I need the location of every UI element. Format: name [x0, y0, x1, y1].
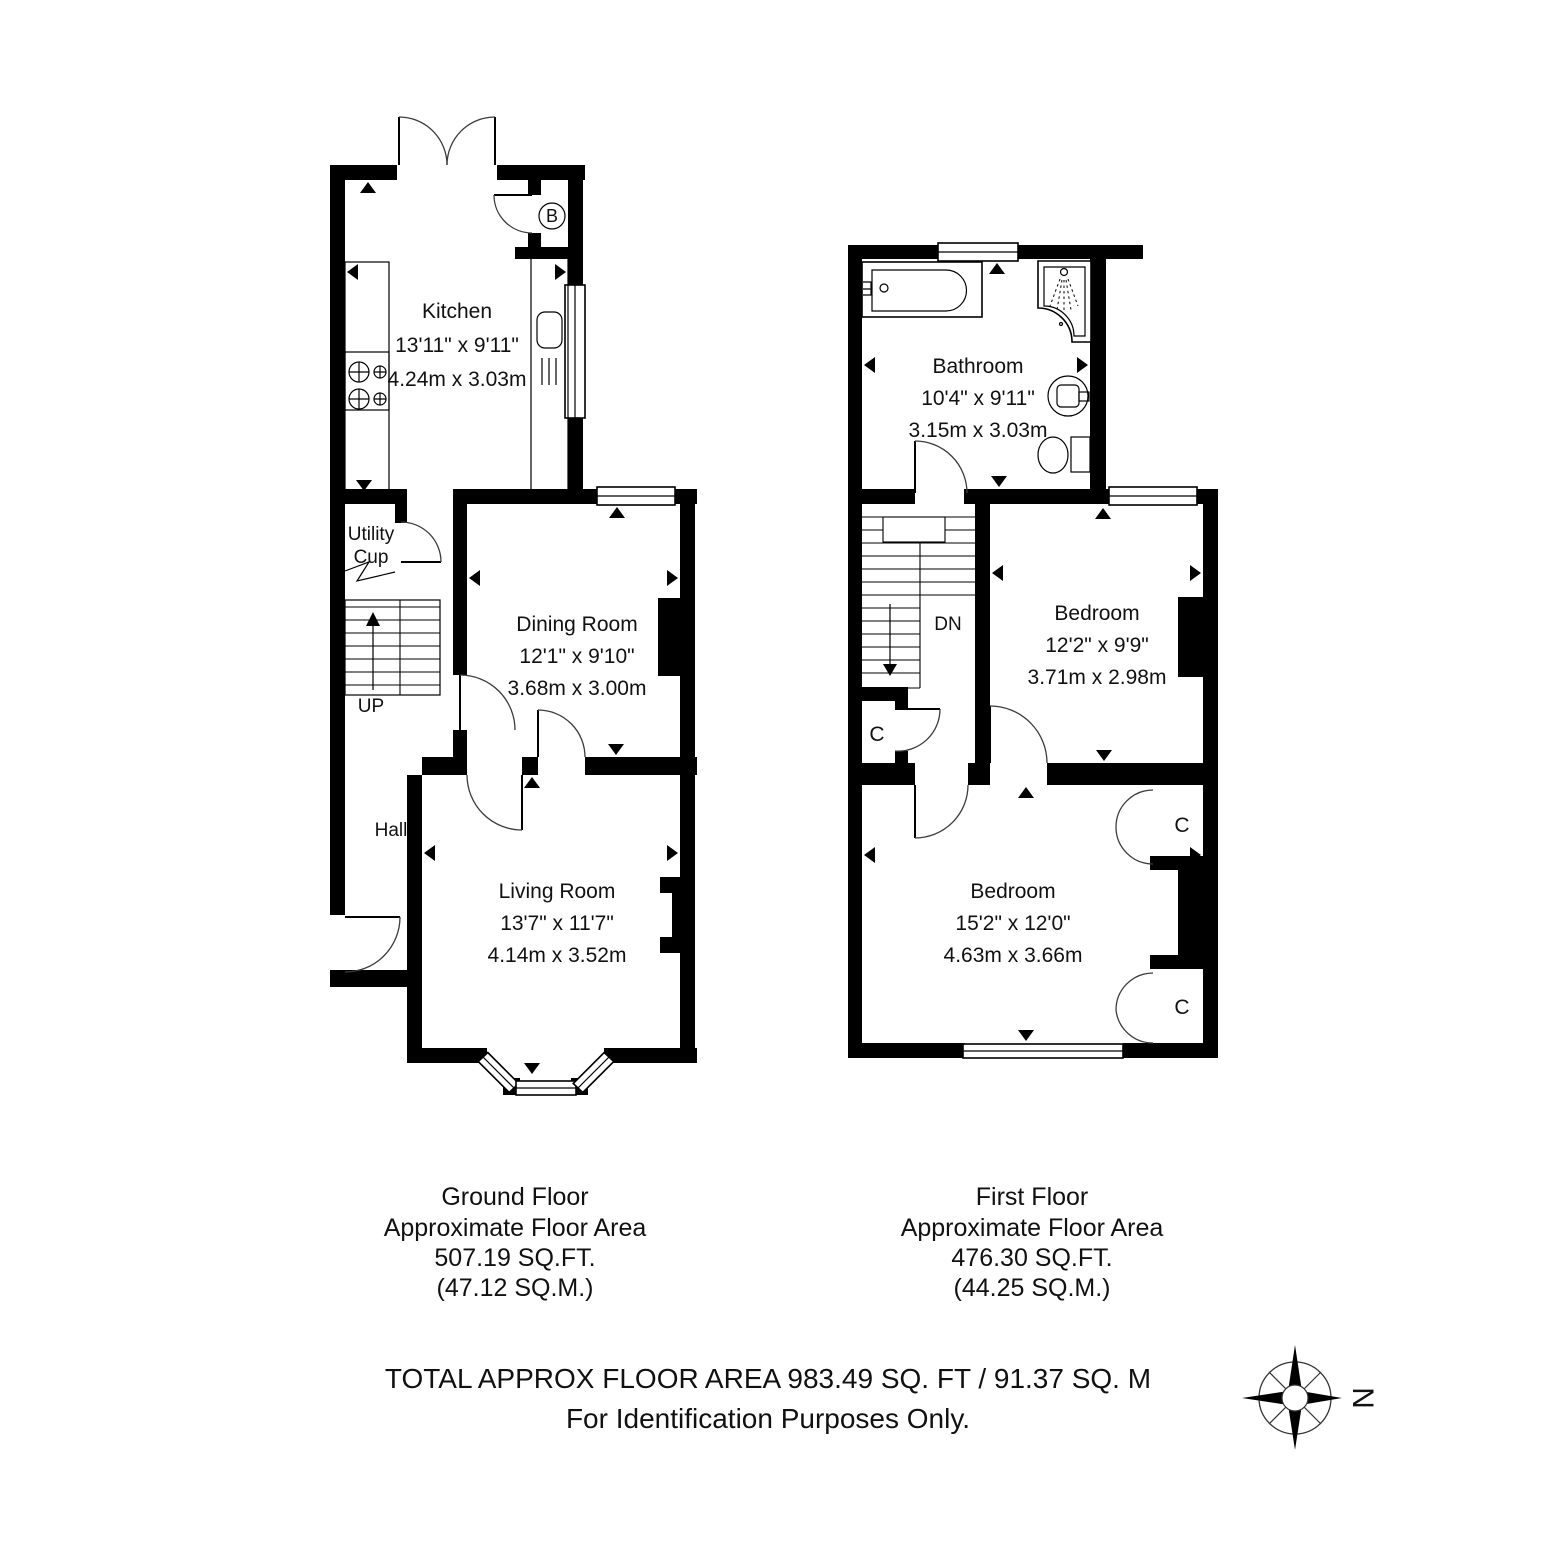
marker-triangle	[360, 182, 376, 193]
dining-room-dims-imperial: 12'1" x 9'10"	[519, 645, 634, 668]
closet-landing-door-arc	[895, 709, 940, 751]
kitchen-dims-metric: 4.24m x 3.03m	[388, 368, 527, 391]
bedroom-rear-door-arc	[990, 706, 1047, 763]
stairs-down-label: DN	[934, 614, 961, 635]
marker-triangle	[991, 476, 1007, 487]
closet-front-bifold-bottom	[1116, 1010, 1153, 1043]
basin-bowl	[1057, 385, 1079, 407]
boiler-cupboard-door-arc	[494, 195, 532, 233]
footer: TOTAL APPROX FLOOR AREA 983.49 SQ. FT / …	[385, 1363, 1151, 1434]
kitchen-drainer	[542, 358, 556, 385]
bathroom-dims-metric: 3.15m x 3.03m	[909, 419, 1048, 442]
ground-floor-caption-3: 507.19 SQ.FT.	[434, 1244, 595, 1272]
marker-triangle	[864, 357, 875, 373]
utility-door-arc	[401, 522, 441, 562]
total-area-text: TOTAL APPROX FLOOR AREA 983.49 SQ. FT / …	[385, 1363, 1151, 1394]
closet-rear-label: C	[1174, 814, 1189, 837]
closet-rear-bifold-bottom	[1116, 827, 1153, 864]
closet-landing-label: C	[869, 723, 884, 746]
closet-rear-bifold-top	[1116, 790, 1153, 827]
marker-triangle	[347, 264, 358, 280]
bedroom-front-door-arc	[915, 785, 968, 838]
dining-living-door-arc	[538, 710, 585, 757]
bedroom-front-dims-metric: 4.63m x 3.66m	[944, 944, 1083, 967]
first-floor-caption-1: First Floor	[976, 1183, 1089, 1211]
bedroom-rear-dims-metric: 3.71m x 2.98m	[1028, 666, 1167, 689]
ground-floor-stairs	[345, 562, 440, 695]
ground-floor-caption-1: Ground Floor	[441, 1183, 588, 1211]
first-floor-plan: Bathroom 10'4" x 9'11" 3.15m x 3.03m Bed…	[848, 243, 1218, 1058]
ground-floor-caption-2: Approximate Floor Area	[384, 1214, 647, 1242]
french-door-left-arc	[399, 117, 447, 165]
first-floor-caption-2: Approximate Floor Area	[901, 1214, 1164, 1242]
floor-captions: Ground Floor Approximate Floor Area 507.…	[384, 1183, 1164, 1302]
disclaimer-text: For Identification Purposes Only.	[566, 1403, 970, 1434]
bedroom-rear-label: Bedroom	[1054, 602, 1139, 625]
marker-triangle	[524, 1063, 540, 1074]
ground-floor-plan: Kitchen 13'11" x 9'11" 4.24m x 3.03m Din…	[330, 117, 697, 1095]
bedroom-rear-dims-imperial: 12'2" x 9'9"	[1045, 634, 1149, 657]
marker-triangle	[1096, 750, 1112, 761]
marker-triangle	[1077, 357, 1088, 373]
closet-front-bifold-top	[1116, 973, 1153, 1010]
bedroom-front-label: Bedroom	[970, 880, 1055, 903]
marker-triangle	[469, 570, 480, 586]
utility-label-line1: Utility	[348, 524, 395, 545]
shower-tray-outer	[1038, 261, 1091, 342]
first-floor-caption-4: (44.25 SQ.M.)	[954, 1274, 1111, 1302]
marker-triangle	[1018, 1030, 1034, 1041]
living-door-arc	[467, 775, 522, 830]
bathroom-dims-imperial: 10'4" x 9'11"	[921, 387, 1035, 410]
marker-triangle	[989, 263, 1005, 274]
marker-triangle	[555, 264, 566, 280]
first-floor-caption-3: 476.30 SQ.FT.	[951, 1244, 1112, 1272]
bay-window-left-line	[483, 1057, 514, 1088]
toilet-bowl	[1038, 437, 1068, 473]
kitchen-dims-imperial: 13'11" x 9'11"	[395, 334, 519, 357]
dining-room-dims-metric: 3.68m x 3.00m	[508, 677, 647, 700]
basin-outer	[1048, 376, 1088, 416]
hob-unit	[345, 352, 389, 410]
compass-rose: N	[1242, 1345, 1379, 1450]
marker-triangle	[1018, 787, 1034, 798]
bathroom-label: Bathroom	[932, 355, 1023, 378]
stairwell-void	[883, 517, 945, 542]
ground-floor-caption-4: (47.12 SQ.M.)	[437, 1274, 594, 1302]
dining-room-label: Dining Room	[516, 613, 637, 636]
marker-triangle	[524, 777, 540, 788]
marker-triangle	[1190, 565, 1201, 581]
closet-front-label: C	[1174, 996, 1189, 1019]
stairs-up-label: UP	[358, 696, 384, 717]
first-floor-stairs	[862, 517, 975, 688]
bedroom-front-dims-imperial: 15'2" x 12'0"	[955, 912, 1070, 935]
marker-triangle	[992, 565, 1003, 581]
marker-triangle	[608, 744, 624, 755]
stairs-outline	[345, 600, 440, 695]
marker-triangle	[609, 507, 625, 518]
living-room-dims-imperial: 13'7" x 11'7"	[500, 912, 614, 935]
marker-triangle	[1095, 508, 1111, 519]
stairs-down-arrowhead	[883, 664, 897, 676]
stairs-up-arrowhead	[366, 612, 380, 626]
front-door-arc	[345, 917, 400, 972]
utility-label-line2: Cup	[354, 547, 389, 568]
marker-triangle	[864, 847, 875, 863]
kitchen-sink	[537, 312, 562, 348]
bay-window-right-line	[578, 1057, 609, 1088]
living-room-label: Living Room	[499, 880, 616, 903]
toilet-cistern	[1071, 437, 1090, 472]
first-floor-walls	[848, 245, 1218, 1058]
floorplan-canvas: Kitchen 13'11" x 9'11" 4.24m x 3.03m Din…	[0, 0, 1550, 1550]
shower-drain	[1060, 323, 1063, 326]
marker-triangle	[424, 845, 435, 861]
french-door-right-arc	[447, 117, 495, 165]
fireplace-recess	[652, 893, 672, 937]
boiler-label: B	[546, 206, 558, 226]
living-room-dims-metric: 4.14m x 3.52m	[488, 944, 627, 967]
marker-triangle	[667, 845, 678, 861]
stairs-treads	[345, 607, 440, 685]
kitchen-label: Kitchen	[422, 300, 492, 323]
compass-hub	[1282, 1385, 1308, 1411]
compass-north-label: N	[1346, 1387, 1379, 1409]
bathroom-door-arc	[915, 441, 967, 493]
hall-label: Hall	[375, 820, 408, 841]
marker-triangle	[667, 570, 678, 586]
